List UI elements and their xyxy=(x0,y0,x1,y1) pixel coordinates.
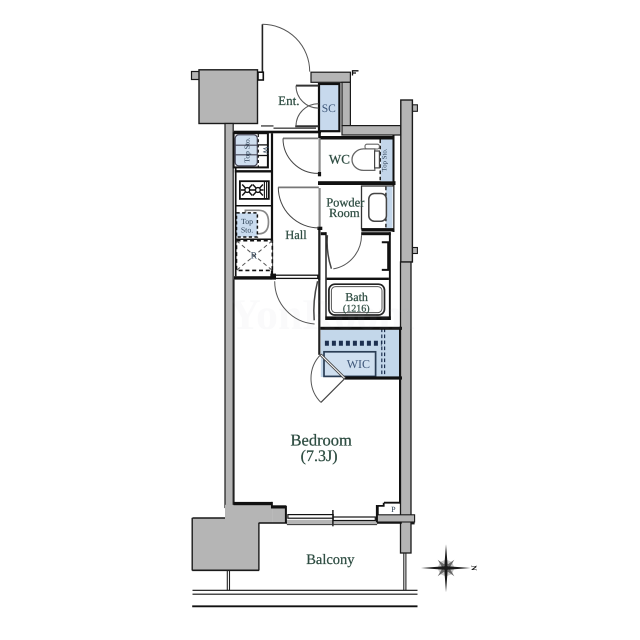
svg-text:WC: WC xyxy=(329,151,350,166)
svg-text:Room: Room xyxy=(329,206,360,220)
svg-text:R: R xyxy=(251,252,258,262)
svg-text:Bedroom: Bedroom xyxy=(290,430,352,449)
svg-text:YonRoom: YonRoom xyxy=(229,290,415,339)
svg-text:Ent.: Ent. xyxy=(278,93,299,108)
svg-text:SC: SC xyxy=(322,103,336,115)
svg-text:(7.3J): (7.3J) xyxy=(301,448,338,465)
svg-text:W: W xyxy=(261,146,271,154)
svg-text:Sto.: Sto. xyxy=(241,226,253,235)
svg-text:Top Sto.: Top Sto. xyxy=(243,137,252,162)
svg-text:P: P xyxy=(391,505,396,514)
svg-text:N: N xyxy=(470,565,479,571)
svg-text:Top Sto.: Top Sto. xyxy=(381,148,388,171)
svg-text:Balcony: Balcony xyxy=(306,552,355,568)
svg-text:Hall: Hall xyxy=(285,228,307,242)
svg-text:WIC: WIC xyxy=(347,357,370,371)
